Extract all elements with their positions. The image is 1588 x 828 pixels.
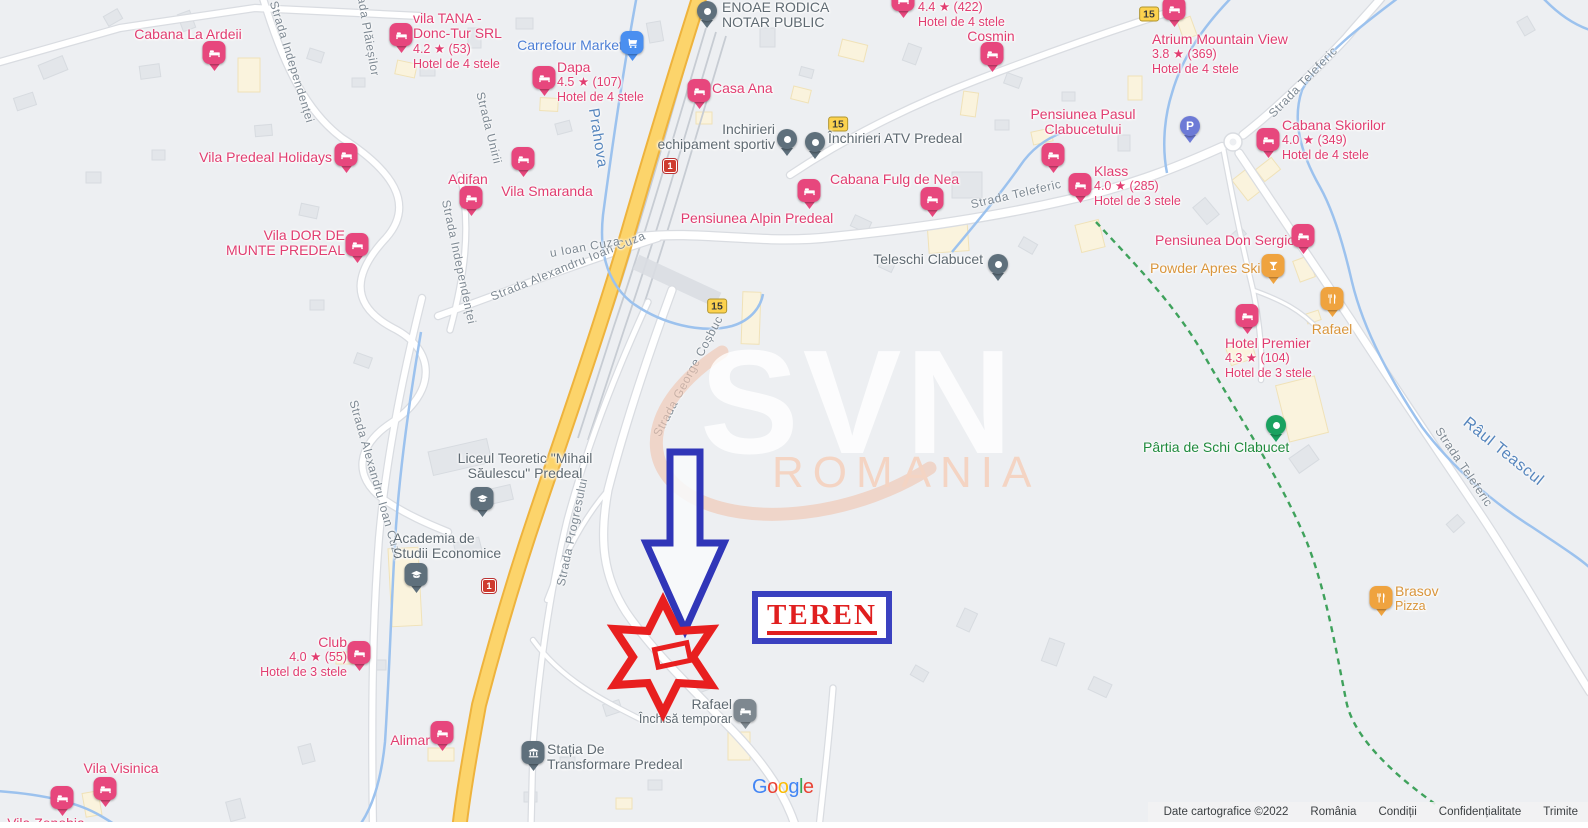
google-logo-letter: o	[767, 776, 778, 798]
teren-annotation-box: TEREN	[752, 591, 892, 644]
attribution-link-trimite[interactable]: Trimite	[1543, 806, 1578, 818]
google-logo-letter: G	[752, 776, 767, 798]
google-logo-letter: o	[778, 776, 789, 798]
annotation-parcel-rect	[654, 643, 690, 667]
google-logo-letter: g	[788, 776, 799, 798]
attribution-region-românia: România	[1310, 806, 1356, 818]
bottom-strip	[0, 822, 1588, 828]
attribution-bar: Date cartografice ©2022 RomâniaCondițiiC…	[1148, 802, 1588, 822]
attribution-link-confidențialitate[interactable]: Confidențialitate	[1439, 806, 1521, 818]
attribution-link-condiții[interactable]: Condiții	[1378, 806, 1416, 818]
teren-label: TEREN	[767, 601, 877, 635]
annotation-star	[615, 601, 712, 713]
annotation-layer	[0, 0, 1588, 828]
map-copyright: Date cartografice ©2022	[1164, 806, 1289, 818]
google-logo-letter: e	[803, 776, 814, 798]
map-canvas[interactable]: SVN ROMANIA TEREN Google Date cartografi…	[0, 0, 1588, 828]
google-logo[interactable]: Google	[752, 776, 814, 799]
